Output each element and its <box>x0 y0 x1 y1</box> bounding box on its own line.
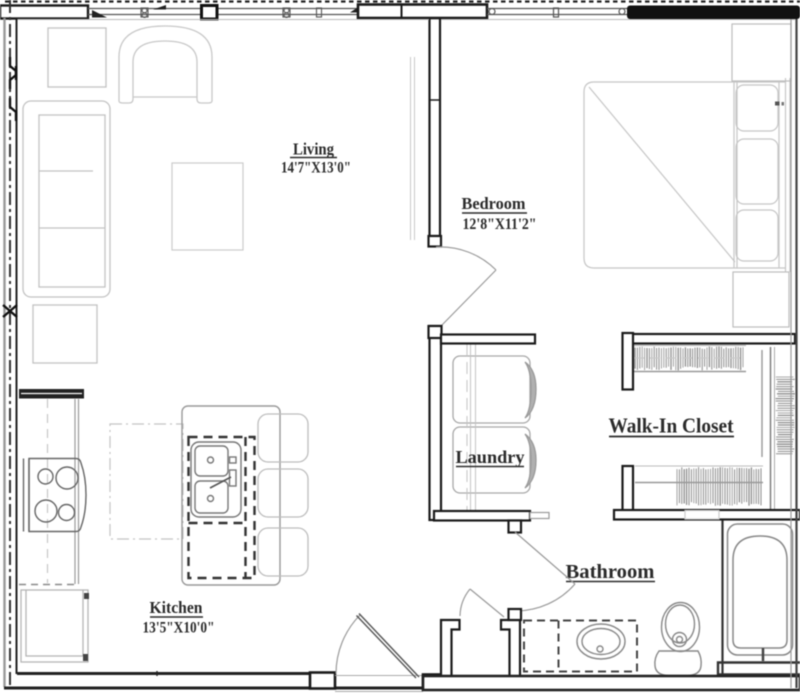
svg-text:13'5"X10'0": 13'5"X10'0" <box>143 620 215 637</box>
svg-text:Bedroom: Bedroom <box>462 194 526 213</box>
svg-text:12'8"X11'2": 12'8"X11'2" <box>463 216 537 233</box>
svg-text:Bathroom: Bathroom <box>566 562 655 583</box>
svg-text:14'7"X13'0": 14'7"X13'0" <box>281 160 351 177</box>
svg-text:Kitchen: Kitchen <box>150 598 203 617</box>
svg-text:Living: Living <box>293 140 334 159</box>
svg-text:Laundry: Laundry <box>456 447 525 467</box>
svg-text:Walk-In Closet: Walk-In Closet <box>609 414 734 438</box>
